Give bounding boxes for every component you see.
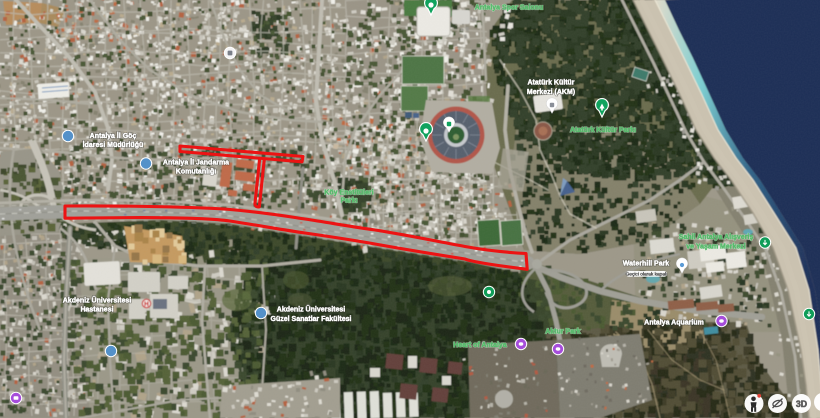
svg-text:Komutanlığı: Komutanlığı bbox=[176, 169, 216, 176]
svg-text:Hastanesi: Hastanesi bbox=[80, 307, 113, 314]
svg-text:Heart of Antalya: Heart of Antalya bbox=[453, 342, 507, 349]
svg-text:Antalya İl Göç: Antalya İl Göç bbox=[90, 132, 137, 140]
svg-text:Akdeniz Üniversitesi: Akdeniz Üniversitesi bbox=[63, 296, 132, 305]
svg-text:Güzel Sanatlar Fakültesi: Güzel Sanatlar Fakültesi bbox=[271, 316, 352, 323]
svg-text:Antalya İl Jandarma: Antalya İl Jandarma bbox=[163, 159, 229, 167]
svg-text:Aktur Park: Aktur Park bbox=[545, 329, 581, 336]
svg-text:Antalya Aquarium: Antalya Aquarium bbox=[644, 320, 704, 327]
svg-text:Antalya Spor Salonu: Antalya Spor Salonu bbox=[475, 5, 543, 12]
svg-text:Köy Enstitüleri: Köy Enstitüleri bbox=[324, 190, 373, 197]
svg-text:Parkı: Parkı bbox=[340, 198, 357, 205]
svg-text:Waterhill Park: Waterhill Park bbox=[623, 261, 670, 268]
svg-text:İdaresi Müdürlüğü: İdaresi Müdürlüğü bbox=[83, 141, 144, 149]
svg-text:3D: 3D bbox=[796, 399, 807, 409]
svg-text:Geçici olarak kapalı: Geçici olarak kapalı bbox=[626, 272, 668, 278]
svg-text:ve Yaşam Merkezi: ve Yaşam Merkezi bbox=[686, 244, 745, 251]
svg-text:Atatürk Kültür: Atatürk Kültür bbox=[527, 80, 574, 87]
svg-text:Atatürk Kültür Parkı: Atatürk Kültür Parkı bbox=[570, 127, 636, 134]
svg-text:Merkezi (AKM): Merkezi (AKM) bbox=[527, 89, 575, 96]
svg-text:Sahil Antalya Alışveriş: Sahil Antalya Alışveriş bbox=[679, 234, 754, 241]
svg-text:Akdeniz Üniversitesi: Akdeniz Üniversitesi bbox=[277, 305, 346, 314]
